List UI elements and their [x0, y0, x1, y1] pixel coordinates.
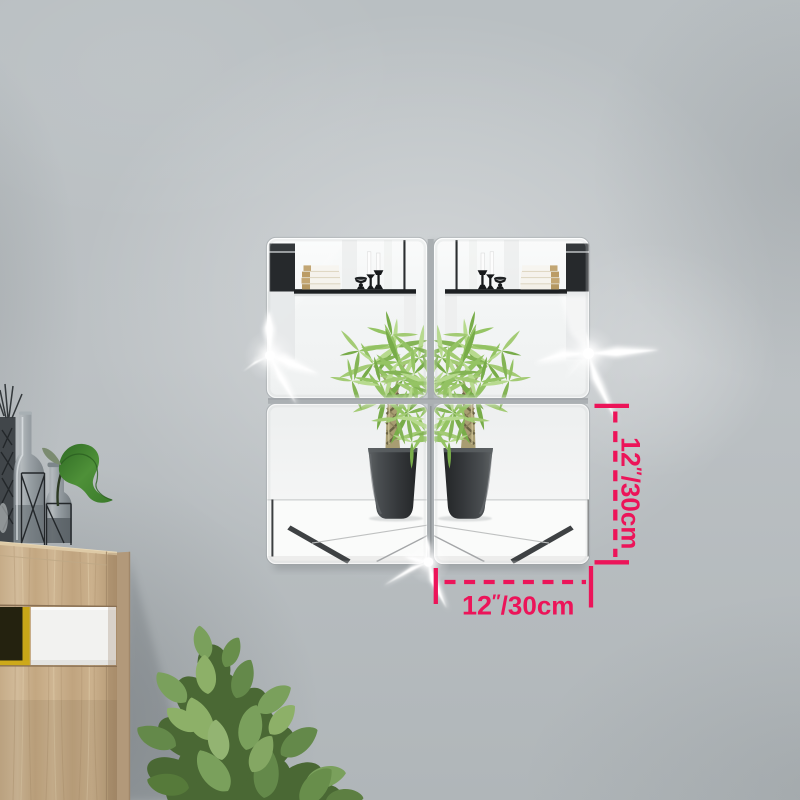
svg-text:12″/30cm: 12″/30cm [462, 591, 574, 621]
svg-text:12″/30cm: 12″/30cm [616, 437, 646, 549]
